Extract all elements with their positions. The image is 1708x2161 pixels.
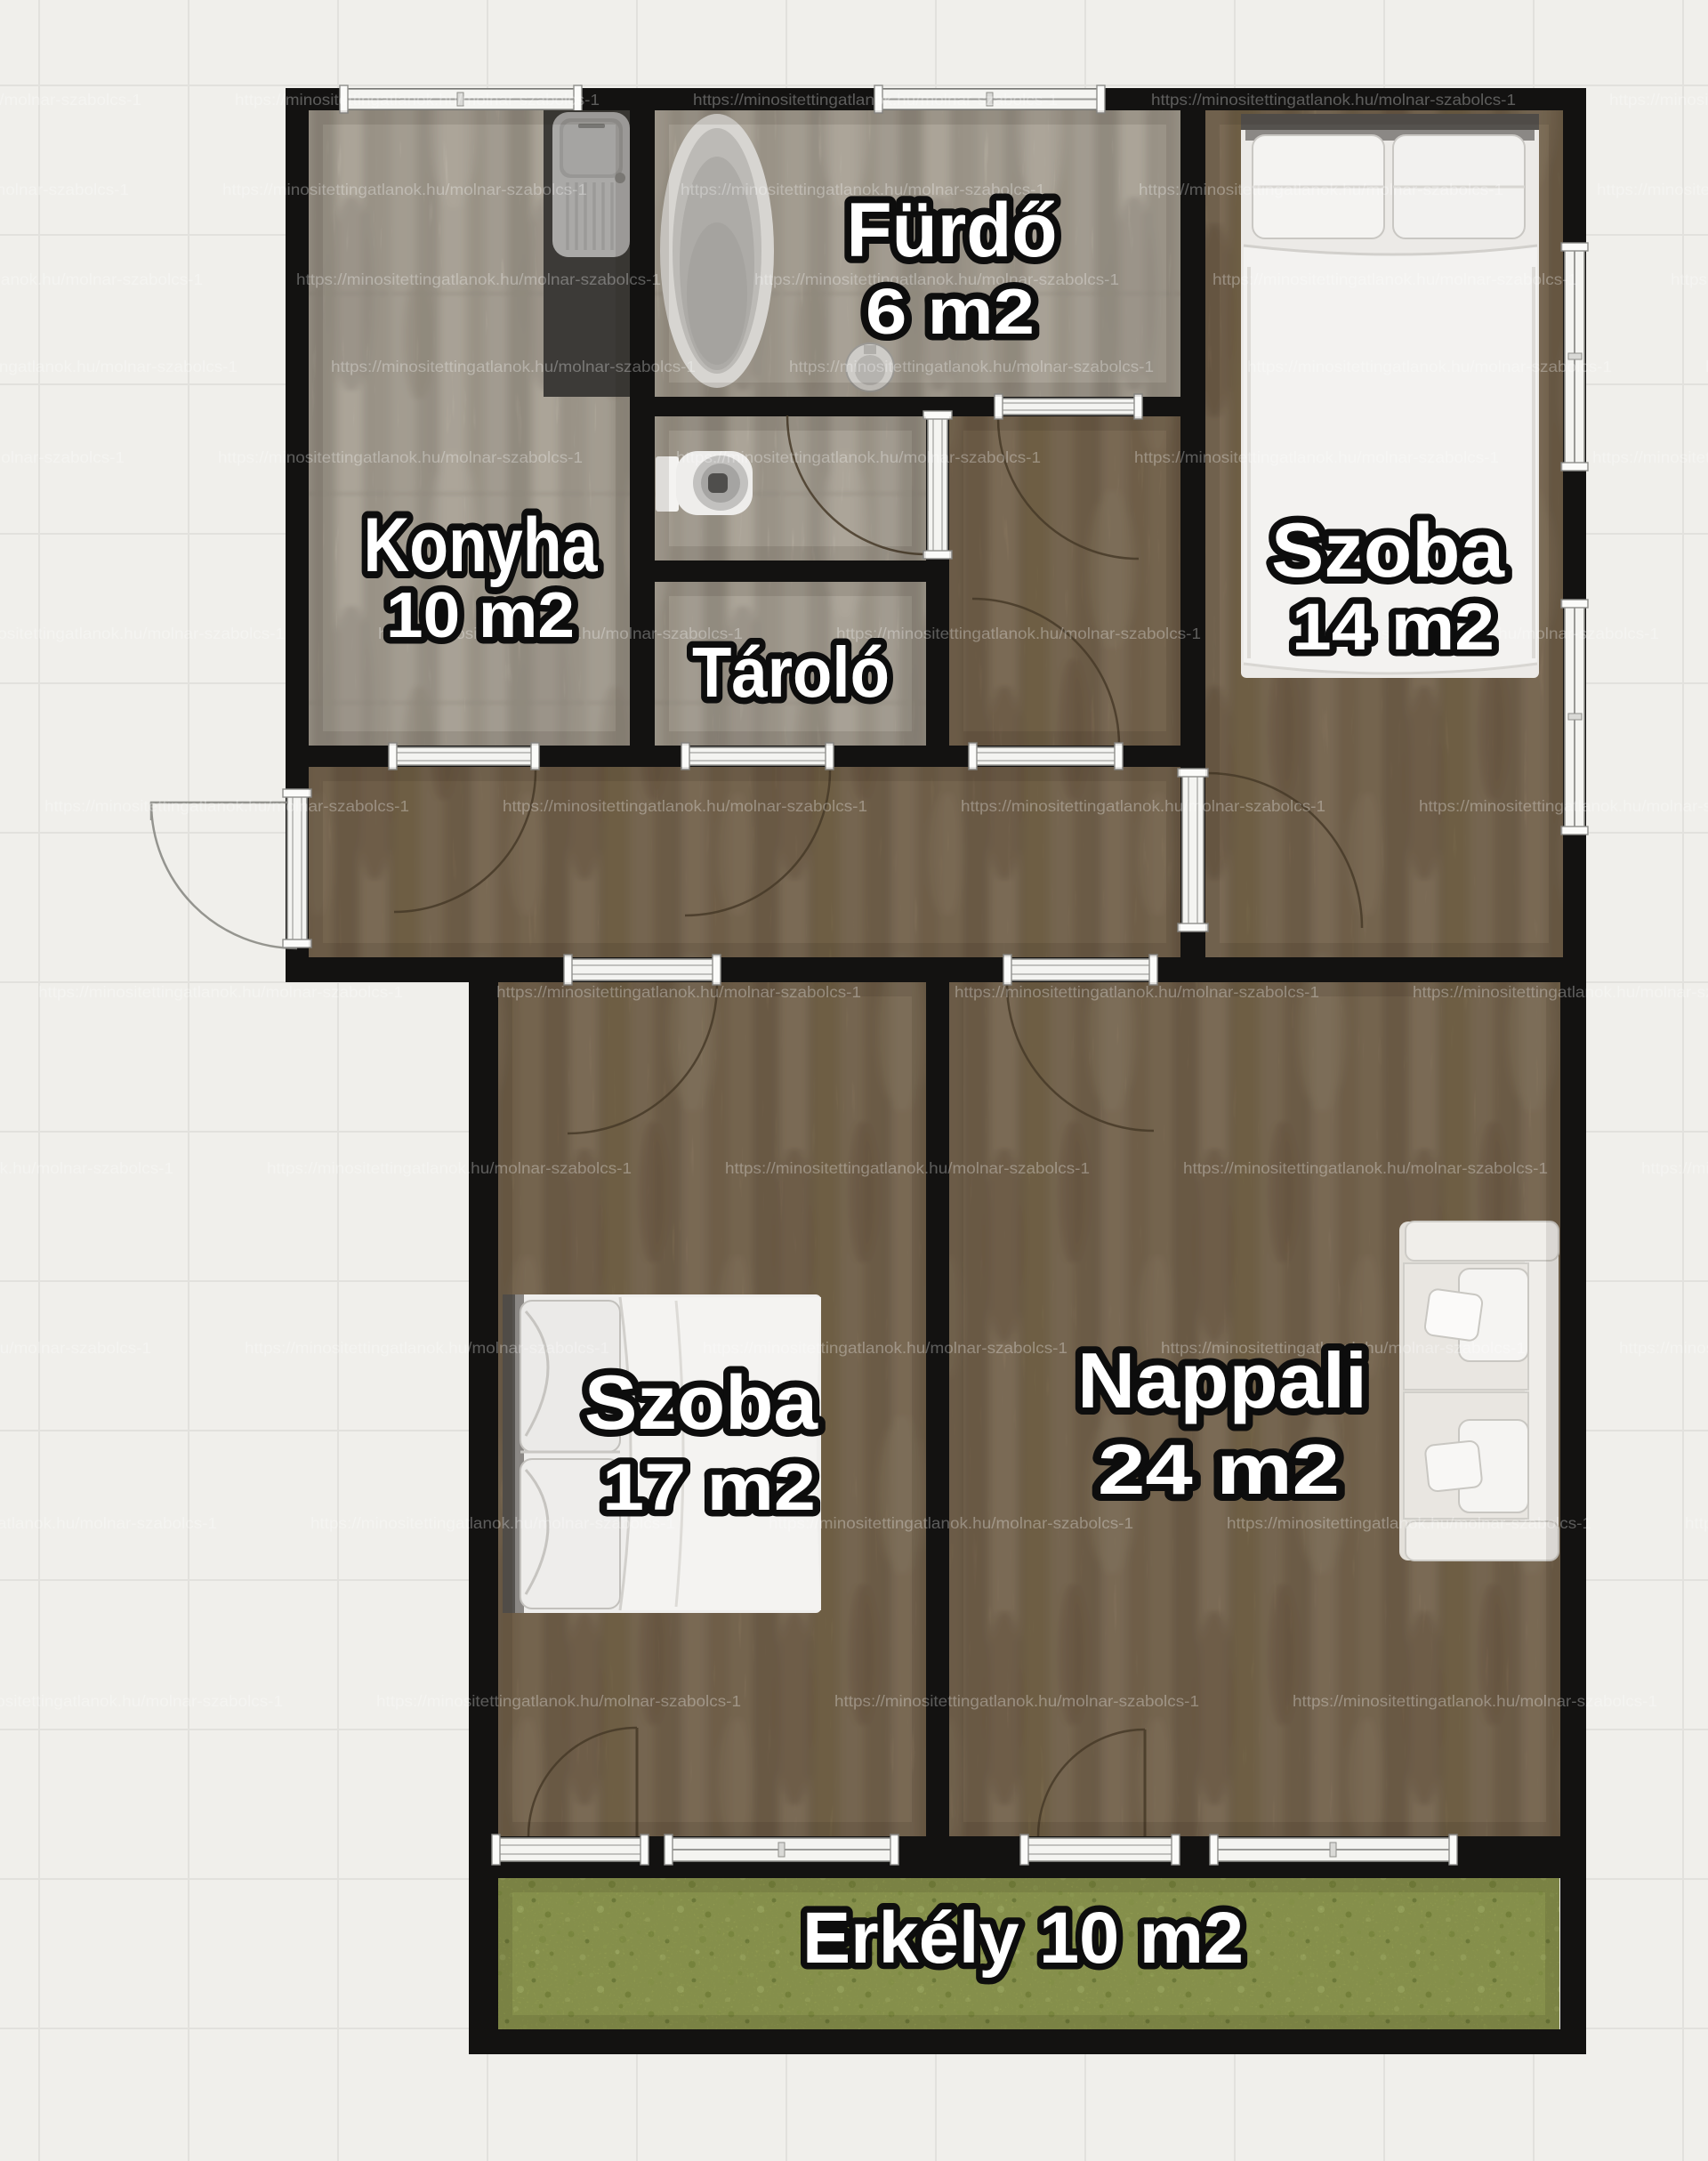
svg-text:https://minositettingatlanok.h: https://minositettingatlanok.hu/molnar-s… (1592, 448, 1708, 466)
svg-text:https://minositettingatlanok.h: https://minositettingatlanok.hu/molnar-s… (235, 91, 600, 109)
svg-text:https://minositettingatlanok.h: https://minositettingatlanok.hu/molnar-s… (725, 1159, 1090, 1177)
svg-text:https://minositettingatlanok.h: https://minositettingatlanok.hu/molnar-s… (0, 1159, 173, 1177)
svg-text:https://minositettingatlanok.h: https://minositettingatlanok.hu/molnar-s… (1597, 181, 1708, 198)
svg-text:Szoba: Szoba (1271, 508, 1505, 593)
svg-text:https://minositettingatlanok.h: https://minositettingatlanok.hu/molnar-s… (0, 270, 203, 288)
svg-text:https://minositettingatlanok.h: https://minositettingatlanok.hu/molnar-s… (1619, 1339, 1708, 1357)
svg-text:https://minositettingatlanok.h: https://minositettingatlanok.hu/molnar-s… (836, 625, 1201, 642)
svg-text:14 m2: 14 m2 (1292, 590, 1494, 664)
svg-text:https://minositettingatlanok.h: https://minositettingatlanok.hu/molnar-s… (218, 448, 583, 466)
svg-text:https://minositettingatlanok.h: https://minositettingatlanok.hu/molnar-s… (1293, 1692, 1657, 1710)
svg-text:https://minositettingatlanok.h: https://minositettingatlanok.hu/molnar-s… (245, 1339, 609, 1357)
svg-text:https://minositettingatlanok.h: https://minositettingatlanok.hu/molnar-s… (1419, 797, 1708, 815)
svg-text:https://minositettingatlanok.h: https://minositettingatlanok.hu/molnar-s… (1247, 358, 1612, 375)
svg-text:https://minositettingatlanok.h: https://minositettingatlanok.hu/molnar-s… (1641, 1159, 1708, 1177)
svg-text:17 m2: 17 m2 (602, 1450, 816, 1524)
svg-text:https://minositettingatlanok.h: https://minositettingatlanok.hu/molnar-s… (703, 1339, 1067, 1357)
svg-text:https://minositettingatlanok.h: https://minositettingatlanok.hu/molnar-s… (222, 181, 587, 198)
svg-text:Szoba: Szoba (584, 1360, 818, 1446)
svg-text:https://minositettingatlanok.h: https://minositettingatlanok.hu/molnar-s… (834, 1692, 1199, 1710)
svg-text:https://minositettingatlanok.h: https://minositettingatlanok.hu/molnar-s… (0, 181, 129, 198)
svg-text:https://minositettingatlanok.h: https://minositettingatlanok.hu/molnar-s… (1139, 181, 1503, 198)
svg-text:Tároló: Tároló (692, 633, 890, 712)
svg-text:Konyha: Konyha (364, 503, 599, 588)
svg-text:https://minositettingatlanok.h: https://minositettingatlanok.hu/molnar-s… (1134, 448, 1499, 466)
svg-text:https://minositettingatlanok.h: https://minositettingatlanok.hu/molnar-s… (0, 1514, 217, 1532)
svg-text:Fürdő: Fürdő (847, 188, 1058, 273)
svg-text:https://minositettingatlanok.h: https://minositettingatlanok.hu/molnar-s… (496, 983, 861, 1001)
svg-text:6 m2: 6 m2 (866, 277, 1035, 348)
svg-text:https://minositettingatlanok.h: https://minositettingatlanok.hu/molnar-s… (0, 358, 238, 375)
svg-text:https://minositettingatlanok.h: https://minositettingatlanok.hu/molnar-s… (267, 1159, 632, 1177)
svg-text:Nappali: Nappali (1077, 1336, 1367, 1424)
svg-text:https://minositettingatlanok.h: https://minositettingatlanok.hu/molnar-s… (0, 1339, 151, 1357)
svg-text:https://minositettingatlanok.h: https://minositettingatlanok.hu/molnar-s… (961, 797, 1325, 815)
svg-text:https://minositettingatlanok.h: https://minositettingatlanok.hu/molnar-s… (955, 983, 1319, 1001)
svg-text:Erkély 10 m2: Erkély 10 m2 (802, 1898, 1244, 1979)
svg-text:https://minositettingatlanok.h: https://minositettingatlanok.hu/molnar-s… (676, 448, 1041, 466)
svg-text:https://minositettingatlanok.h: https://minositettingatlanok.hu/molnar-s… (1151, 91, 1516, 109)
svg-text:https://minositettingatlanok.h: https://minositettingatlanok.hu/molnar-s… (1685, 1514, 1708, 1532)
svg-text:https://minositettingatlanok.h: https://minositettingatlanok.hu/molnar-s… (0, 1692, 283, 1710)
svg-text:https://minositettingatlanok.h: https://minositettingatlanok.hu/molnar-s… (0, 91, 141, 109)
svg-text:https://minositettingatlanok.h: https://minositettingatlanok.hu/molnar-s… (1609, 91, 1708, 109)
svg-text:https://minositettingatlanok.h: https://minositettingatlanok.hu/molnar-s… (503, 797, 867, 815)
svg-text:https://minositettingatlanok.h: https://minositettingatlanok.hu/molnar-s… (0, 448, 125, 466)
svg-text:https://minositettingatlanok.h: https://minositettingatlanok.hu/molnar-s… (1213, 270, 1577, 288)
svg-text:https://minositettingatlanok.h: https://minositettingatlanok.hu/molnar-s… (0, 625, 285, 642)
svg-text:https://minositettingatlanok.h: https://minositettingatlanok.hu/molnar-s… (296, 270, 661, 288)
svg-text:https://minositettingatlanok.h: https://minositettingatlanok.hu/molnar-s… (376, 1692, 741, 1710)
svg-text:https://minositettingatlanok.h: https://minositettingatlanok.hu/molnar-s… (331, 358, 696, 375)
svg-text:https://minositettingatlanok.h: https://minositettingatlanok.hu/molnar-s… (44, 797, 409, 815)
svg-text:https://minositettingatlanok.h: https://minositettingatlanok.hu/molnar-s… (1413, 983, 1708, 1001)
svg-text:https://minositettingatlanok.h: https://minositettingatlanok.hu/molnar-s… (1227, 1514, 1591, 1532)
svg-text:https://minositettingatlanok.h: https://minositettingatlanok.hu/molnar-s… (789, 358, 1154, 375)
svg-text:https://minositettingatlanok.h: https://minositettingatlanok.hu/molnar-s… (38, 983, 403, 1001)
svg-text:https://minositettingatlanok.h: https://minositettingatlanok.hu/molnar-s… (769, 1514, 1133, 1532)
svg-text:https://minositettingatlanok.h: https://minositettingatlanok.hu/molnar-s… (1671, 270, 1708, 288)
svg-text:24 m2: 24 m2 (1098, 1430, 1340, 1509)
svg-text:https://minositettingatlanok.h: https://minositettingatlanok.hu/molnar-s… (1183, 1159, 1548, 1177)
svg-text:https://minositettingatlanok.h: https://minositettingatlanok.hu/molnar-s… (693, 91, 1058, 109)
svg-text:10 m2: 10 m2 (386, 580, 575, 651)
